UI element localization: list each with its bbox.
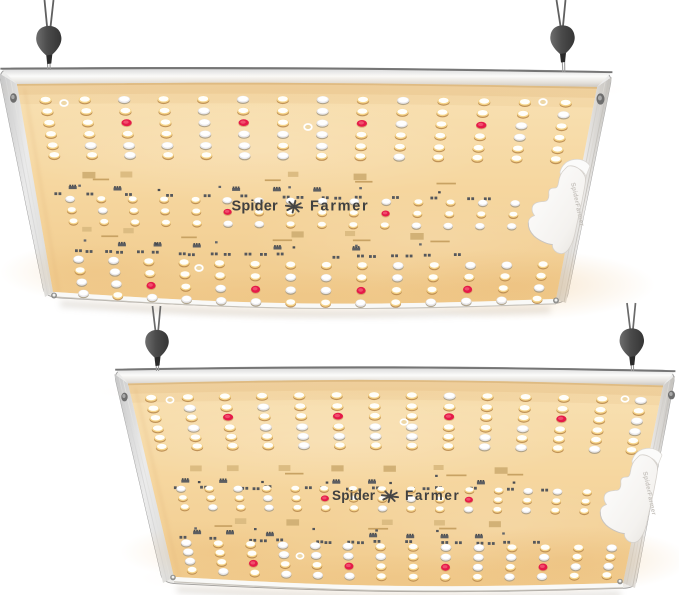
svg-text:Spider: Spider xyxy=(332,488,376,503)
svg-text:Farmer: Farmer xyxy=(310,199,369,215)
svg-text:Farmer: Farmer xyxy=(405,488,460,503)
svg-text:Spider: Spider xyxy=(232,199,278,215)
